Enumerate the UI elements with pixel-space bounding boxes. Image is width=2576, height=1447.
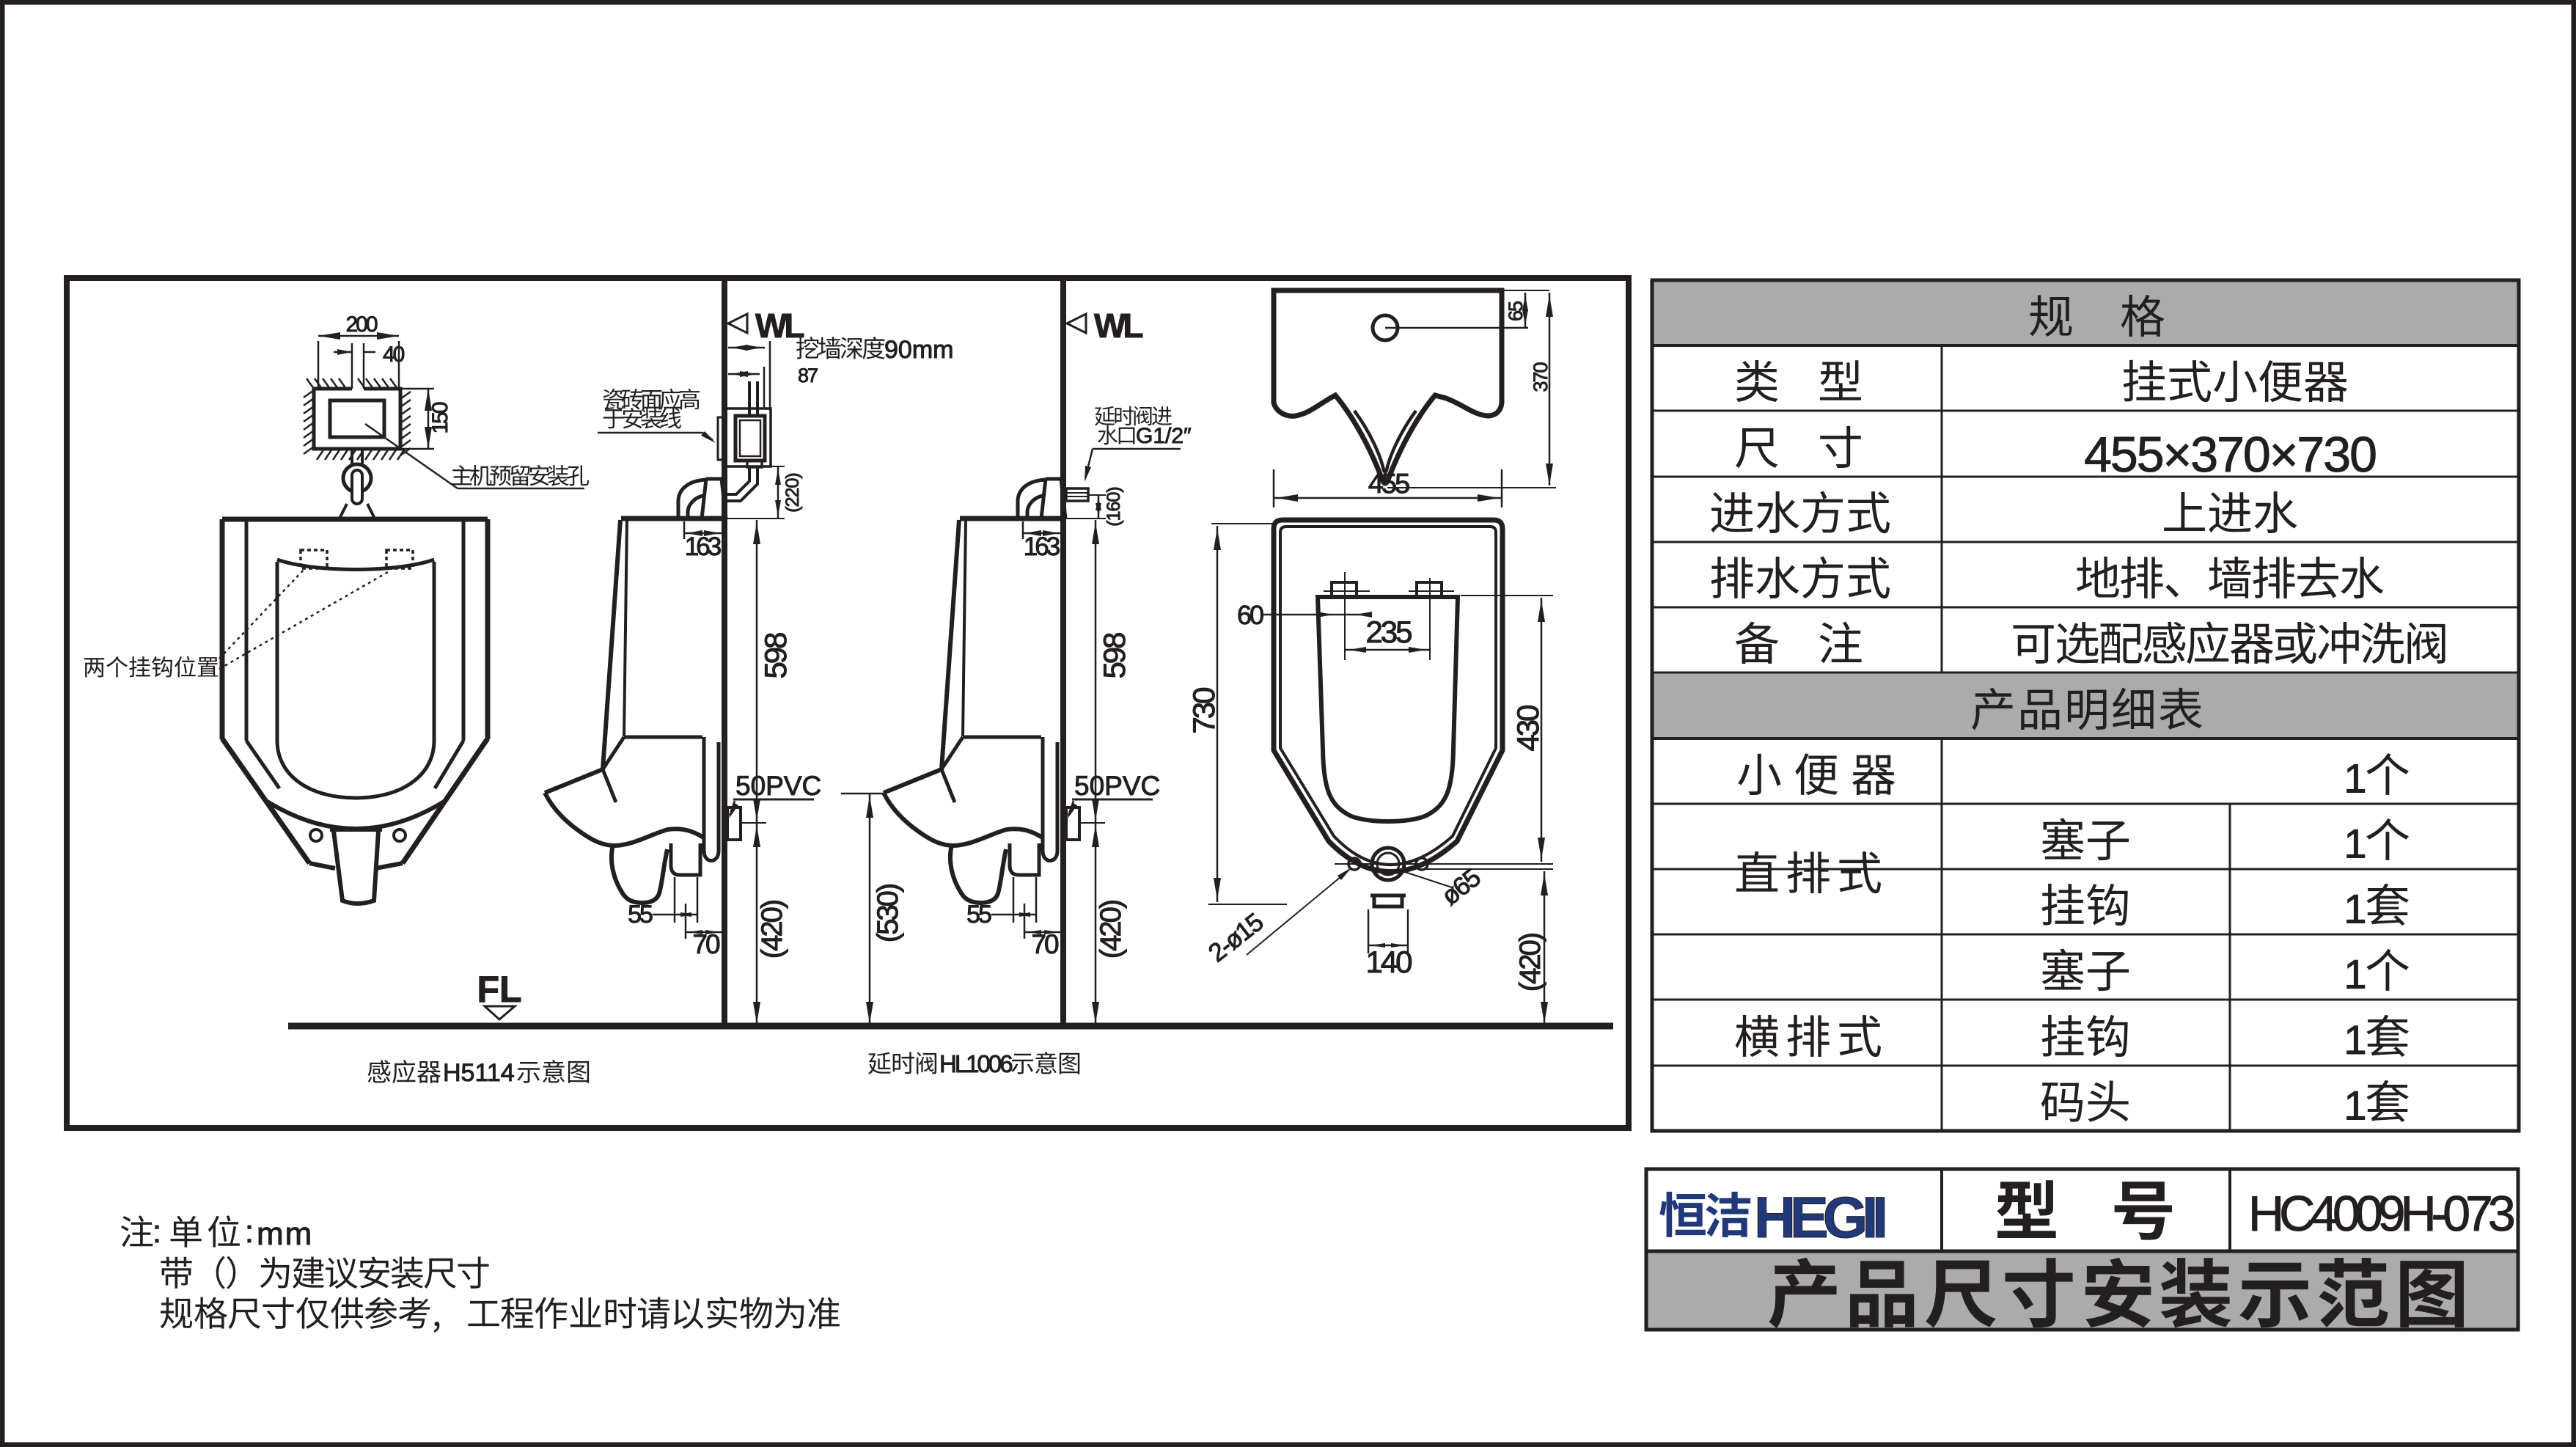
svg-text:598: 598 [758,633,793,679]
svg-text:(160): (160) [1104,487,1124,526]
svg-text:G1/2″: G1/2″ [1136,424,1192,448]
svg-text:50PVC: 50PVC [1074,771,1160,801]
svg-text:55: 55 [966,901,991,928]
svg-text:(420): (420) [1095,901,1127,959]
svg-text:163: 163 [685,532,721,561]
svg-text:455: 455 [1368,469,1409,499]
svg-text:HC4009H-073: HC4009H-073 [2248,1186,2514,1242]
svg-text:HEGII: HEGII [1754,1184,1885,1250]
svg-text:HL1006: HL1006 [939,1050,1012,1077]
svg-text:1: 1 [2344,821,2366,867]
svg-text:WL: WL [1094,307,1142,345]
svg-text:(420): (420) [756,901,788,959]
svg-text:140: 140 [1365,945,1412,979]
svg-text:(220): (220) [782,473,803,512]
svg-text:1: 1 [2344,886,2366,932]
svg-text:40: 40 [383,342,405,367]
svg-text:730: 730 [1186,688,1221,734]
svg-text:FL: FL [477,969,521,1010]
svg-text:90mm: 90mm [884,336,953,364]
svg-text:1: 1 [2344,755,2366,802]
svg-text:WL: WL [755,307,804,345]
svg-text:163: 163 [1024,532,1060,561]
svg-text::: : [153,1214,161,1250]
svg-text::: : [245,1214,254,1250]
svg-text:55: 55 [628,901,653,928]
svg-text:430: 430 [1511,706,1545,752]
svg-text:mm: mm [257,1216,313,1252]
svg-text:370: 370 [1530,362,1552,392]
svg-text:235: 235 [1365,615,1412,649]
svg-text:87: 87 [798,365,818,387]
svg-text:65: 65 [1505,301,1527,321]
svg-text:1: 1 [2344,1082,2366,1129]
svg-text:70: 70 [692,929,720,959]
svg-text:H5114: H5114 [443,1059,515,1087]
svg-text:70: 70 [1031,929,1059,959]
svg-text:1: 1 [2344,951,2366,997]
svg-text:(420): (420) [1514,934,1546,992]
svg-text:60: 60 [1237,600,1263,630]
svg-text:50PVC: 50PVC [735,771,821,801]
svg-text:1: 1 [2344,1016,2366,1063]
svg-text:(530): (530) [872,884,904,942]
svg-text:598: 598 [1097,633,1131,679]
svg-text:200: 200 [345,312,377,337]
svg-text:150: 150 [428,402,452,433]
svg-text:455×370×730: 455×370×730 [2084,427,2376,483]
